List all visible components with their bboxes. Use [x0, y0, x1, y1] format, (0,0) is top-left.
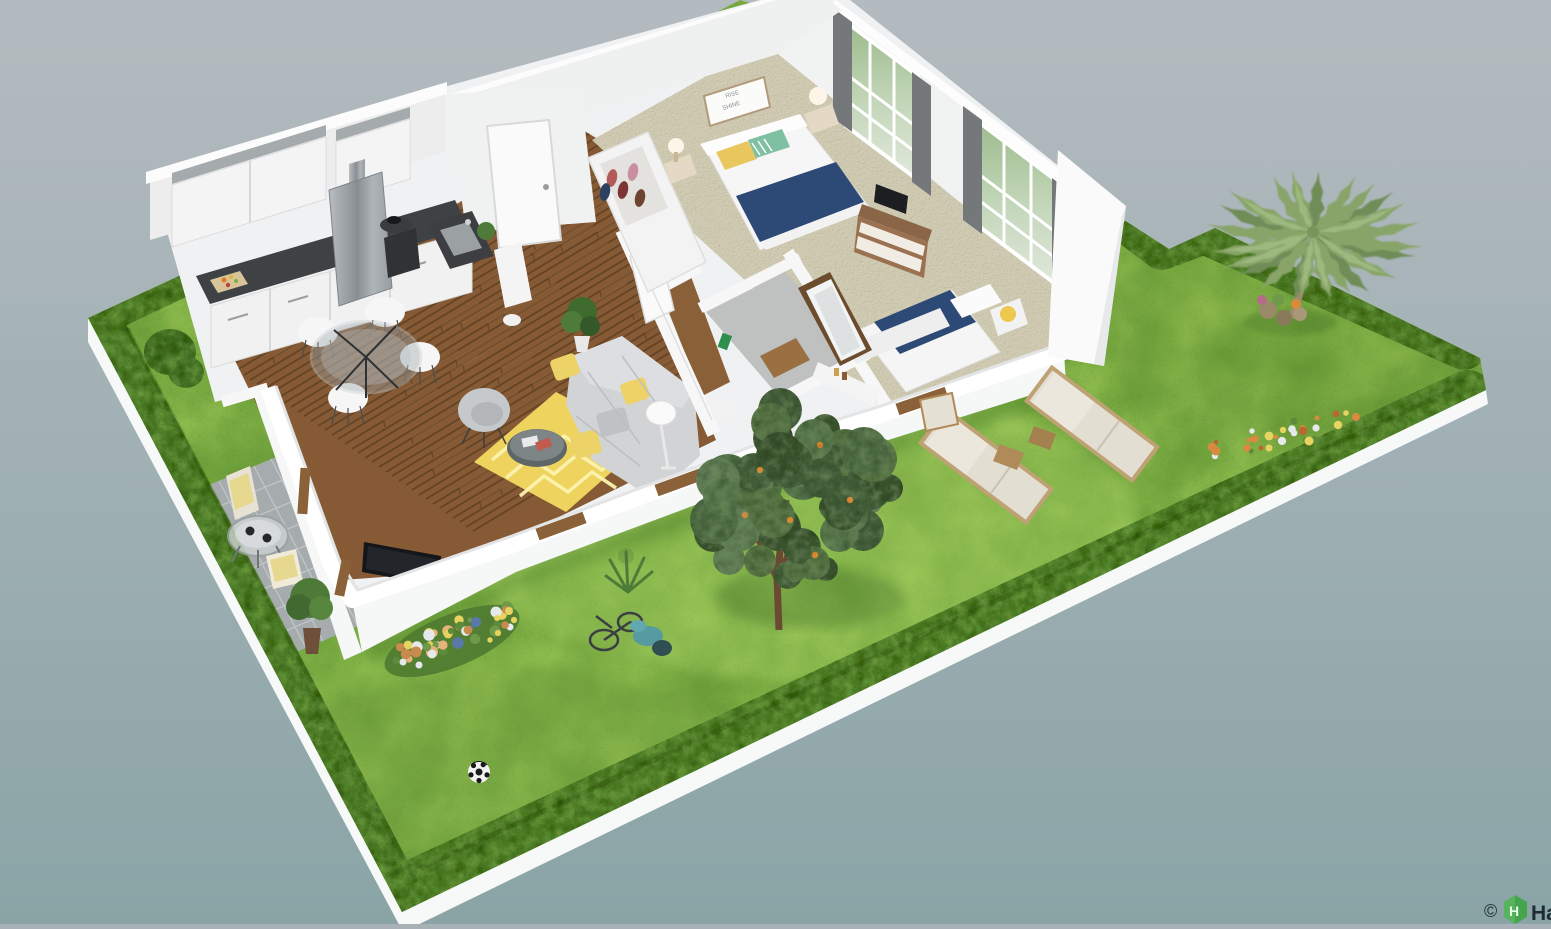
- svg-text:Hal: Hal: [1531, 902, 1551, 924]
- svg-text:H: H: [1509, 903, 1519, 919]
- svg-text:©: ©: [1484, 901, 1497, 921]
